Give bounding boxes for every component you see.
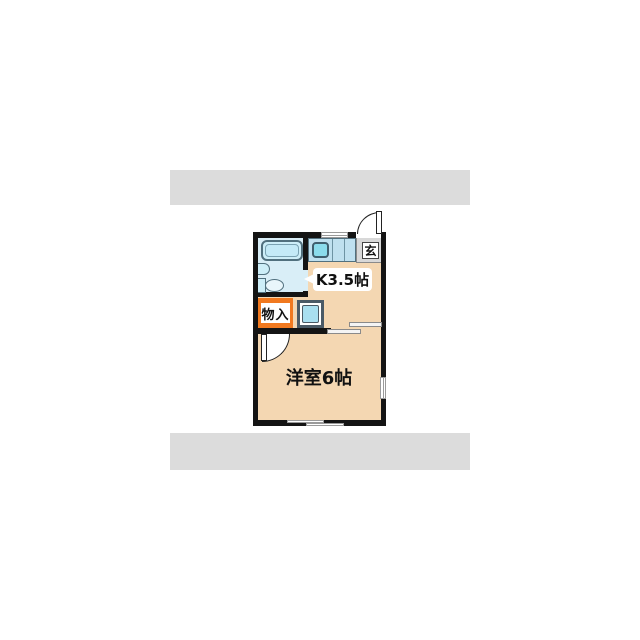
entrance-label: 玄 <box>362 242 379 259</box>
washer-pan-inner <box>302 305 319 323</box>
counter-divider <box>332 239 333 261</box>
washbasin-icon <box>258 263 270 275</box>
room-door-leaf-icon <box>261 334 267 361</box>
sliding-door-icon <box>349 322 382 327</box>
window-icon <box>306 423 344 426</box>
washer-pan-icon <box>297 300 324 328</box>
kitchen-counter <box>308 238 356 262</box>
window-icon <box>321 232 348 238</box>
closet-label: 物入 <box>261 303 290 323</box>
entrance-door-leaf-icon <box>376 211 382 234</box>
gray-band-top <box>170 170 470 205</box>
counter-divider <box>344 239 345 261</box>
closet-box: 物入 <box>258 298 293 328</box>
toilet-bowl-icon <box>265 279 284 292</box>
gray-band-bottom <box>170 433 470 470</box>
bathtub-inner <box>265 244 299 257</box>
window-icon <box>380 377 386 399</box>
window-mullion <box>322 235 347 236</box>
sliding-door-icon <box>327 329 361 334</box>
kitchen-sink-icon <box>312 242 329 258</box>
window-mullion <box>383 378 384 398</box>
western-room-label: 洋室6帖 <box>286 364 353 390</box>
floorplan-image: 物入 玄 K3.5帖 洋室6帖 <box>0 0 640 640</box>
bathtub-icon <box>261 240 303 261</box>
kitchen-label: K3.5帖 <box>313 268 372 291</box>
